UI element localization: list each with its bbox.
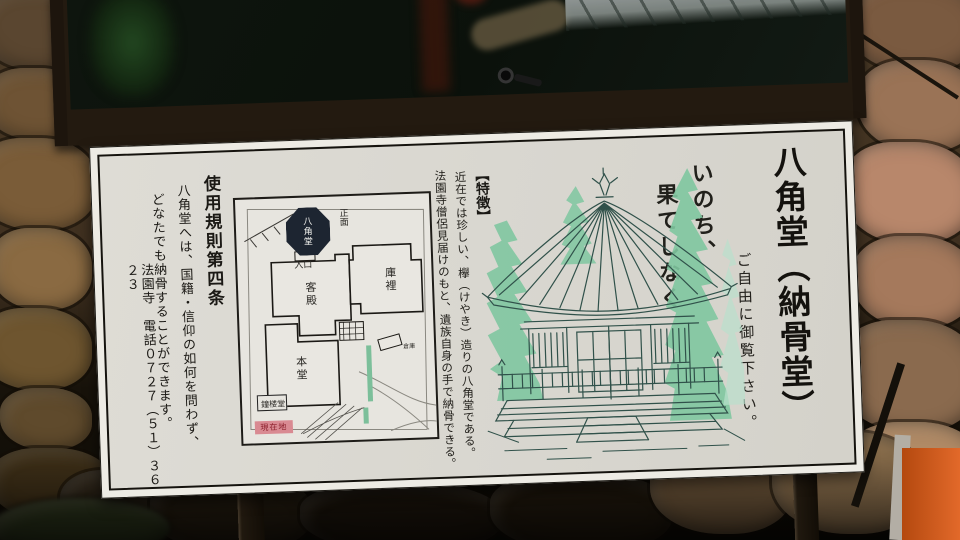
usage-rules-heading: 使用規則第四条 [200,174,224,315]
map-entrance-label: 入口 [294,257,312,271]
map-octagon-label: 八角堂 [301,216,315,246]
map-storehouse-label: 倉庫 [403,341,415,350]
case-latch-icon [497,67,514,84]
signboard-unit: 八角堂（納骨堂） ご自由に御覧下さい。 いのち、 果てしなく [40,0,893,540]
photo-of-temple-signboard: 八角堂（納骨堂） ご自由に御覧下さい。 いのち、 果てしなく [0,0,960,540]
map-main-hall-label: 本堂 [292,356,309,383]
usage-rules-line1: 八角堂へは、国籍・信仰の如何を問わず、 [174,184,199,479]
map-bell-tower-label: 鐘楼堂 [261,398,285,410]
reflection-person-green-shirt [89,0,177,98]
map-current-location-badge: 現在地 [255,420,293,434]
map-priests-quarters-label: 庫裡 [381,266,398,293]
reflection-roof-skylight [564,0,848,31]
sign-panel: 八角堂（納骨堂） ご自由に御覧下さい。 いのち、 果てしなく [89,120,865,498]
reflection-photographer-head [452,0,489,5]
orange-structure [902,448,960,540]
temple-contact: 法園寺 電話０７２７（５１）３６２３ [123,263,161,489]
temple-map: 八角堂 正面 入口 客殿 庫裡 本堂 鐘楼堂 倉庫 現在地 [233,191,440,446]
map-guest-hall-label: 客殿 [302,281,319,308]
reflection-dark-shape [419,0,451,92]
glass-pane [67,0,848,110]
sign-left-leg [237,490,267,540]
case-latch-handle [514,73,543,87]
map-front-label: 正面 [337,208,351,226]
sign-face: 八角堂（納骨堂） ご自由に御覧下さい。 いのち、 果てしなく [97,129,856,491]
sign-title: 八角堂（納骨堂） [765,144,814,467]
reflection-photographer-arm [468,0,573,54]
features-heading: 【特徴】 [472,167,491,248]
octagonal-hall-drawing [475,154,747,468]
features-line1: 近在では珍しい、欅（けやき）造りの八角堂である。 [452,171,476,471]
